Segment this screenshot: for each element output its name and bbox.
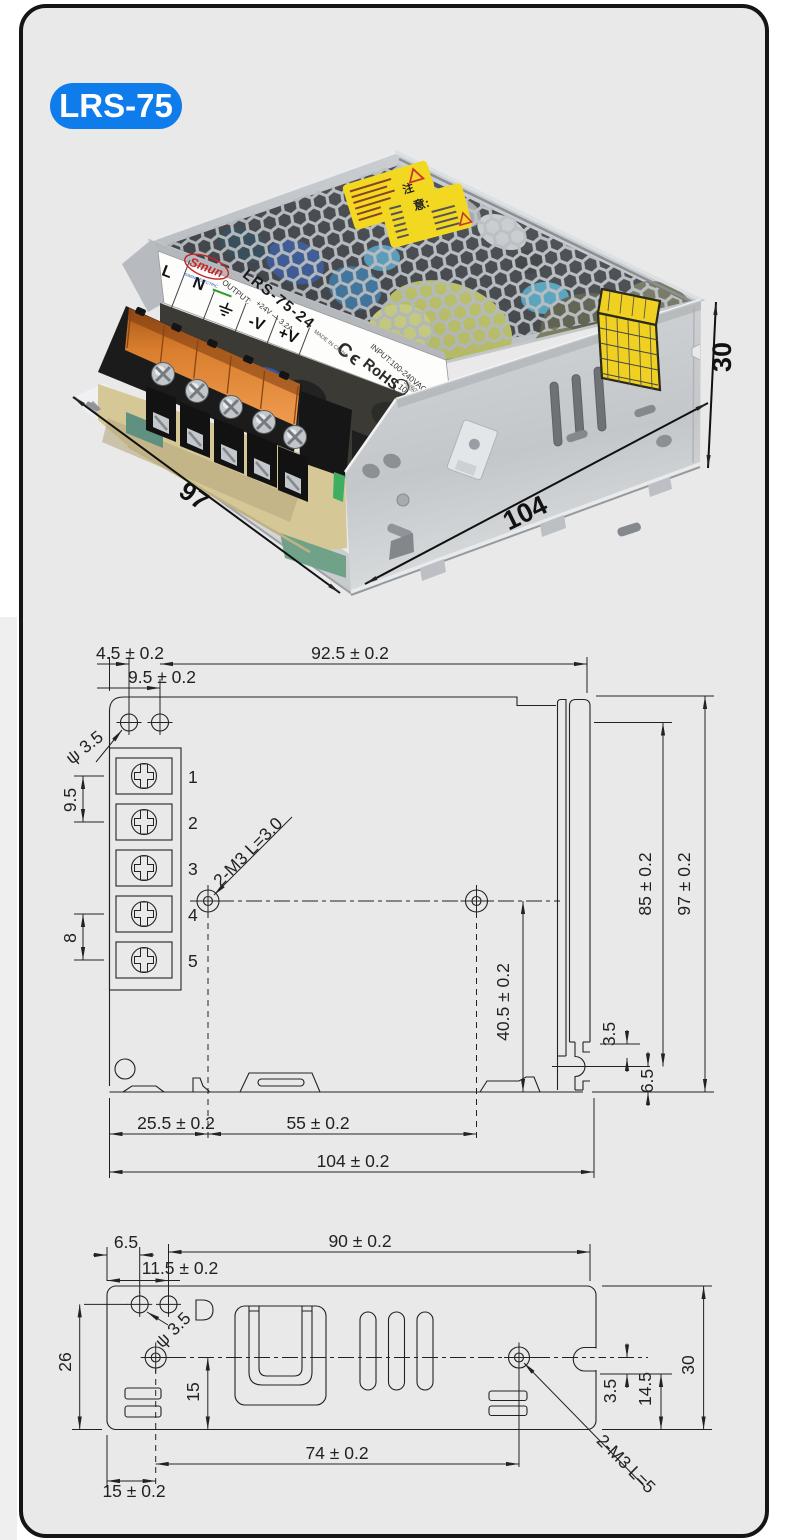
svg-text:1: 1 (188, 767, 198, 787)
svg-text:97 ± 0.2: 97 ± 0.2 (674, 852, 694, 915)
svg-text:15 ± 0.2: 15 ± 0.2 (102, 1481, 165, 1501)
svg-text:85 ± 0.2: 85 ± 0.2 (635, 852, 655, 915)
svg-text:2-M3 L=3.0: 2-M3 L=3.0 (209, 813, 286, 890)
svg-text:6.5: 6.5 (637, 1069, 657, 1093)
svg-text:55 ± 0.2: 55 ± 0.2 (286, 1113, 349, 1133)
svg-text:6.5: 6.5 (114, 1232, 138, 1252)
svg-text:9.5: 9.5 (60, 788, 80, 812)
svg-text:30: 30 (707, 342, 737, 372)
svg-text:ψ 3.5: ψ 3.5 (151, 1308, 195, 1352)
svg-text:8: 8 (60, 933, 80, 943)
svg-text:90 ± 0.2: 90 ± 0.2 (328, 1231, 391, 1251)
svg-text:14.5: 14.5 (635, 1372, 655, 1406)
svg-text:3.5: 3.5 (599, 1022, 619, 1046)
svg-text:15: 15 (183, 1382, 203, 1401)
svg-text:3: 3 (188, 859, 198, 879)
svg-text:4: 4 (188, 905, 198, 925)
svg-text:ψ 3.5: ψ 3.5 (62, 727, 107, 768)
svg-text:25.5 ± 0.2: 25.5 ± 0.2 (137, 1113, 215, 1133)
svg-text:2: 2 (188, 813, 198, 833)
svg-text:40.5 ± 0.2: 40.5 ± 0.2 (493, 963, 513, 1041)
svg-text:4.5 ± 0.2: 4.5 ± 0.2 (96, 643, 164, 663)
svg-text:9.5 ± 0.2: 9.5 ± 0.2 (128, 667, 196, 687)
svg-text:3.5: 3.5 (600, 1379, 620, 1403)
svg-text:5: 5 (188, 951, 198, 971)
svg-text:104 ± 0.2: 104 ± 0.2 (317, 1151, 390, 1171)
svg-text:2-M3 L=5: 2-M3 L=5 (593, 1430, 660, 1497)
svg-text:74 ± 0.2: 74 ± 0.2 (305, 1443, 368, 1463)
svg-text:30: 30 (678, 1355, 698, 1375)
svg-text:92.5 ± 0.2: 92.5 ± 0.2 (311, 643, 389, 663)
svg-text:26: 26 (55, 1352, 75, 1371)
svg-text:11.5 ± 0.2: 11.5 ± 0.2 (142, 1258, 218, 1278)
